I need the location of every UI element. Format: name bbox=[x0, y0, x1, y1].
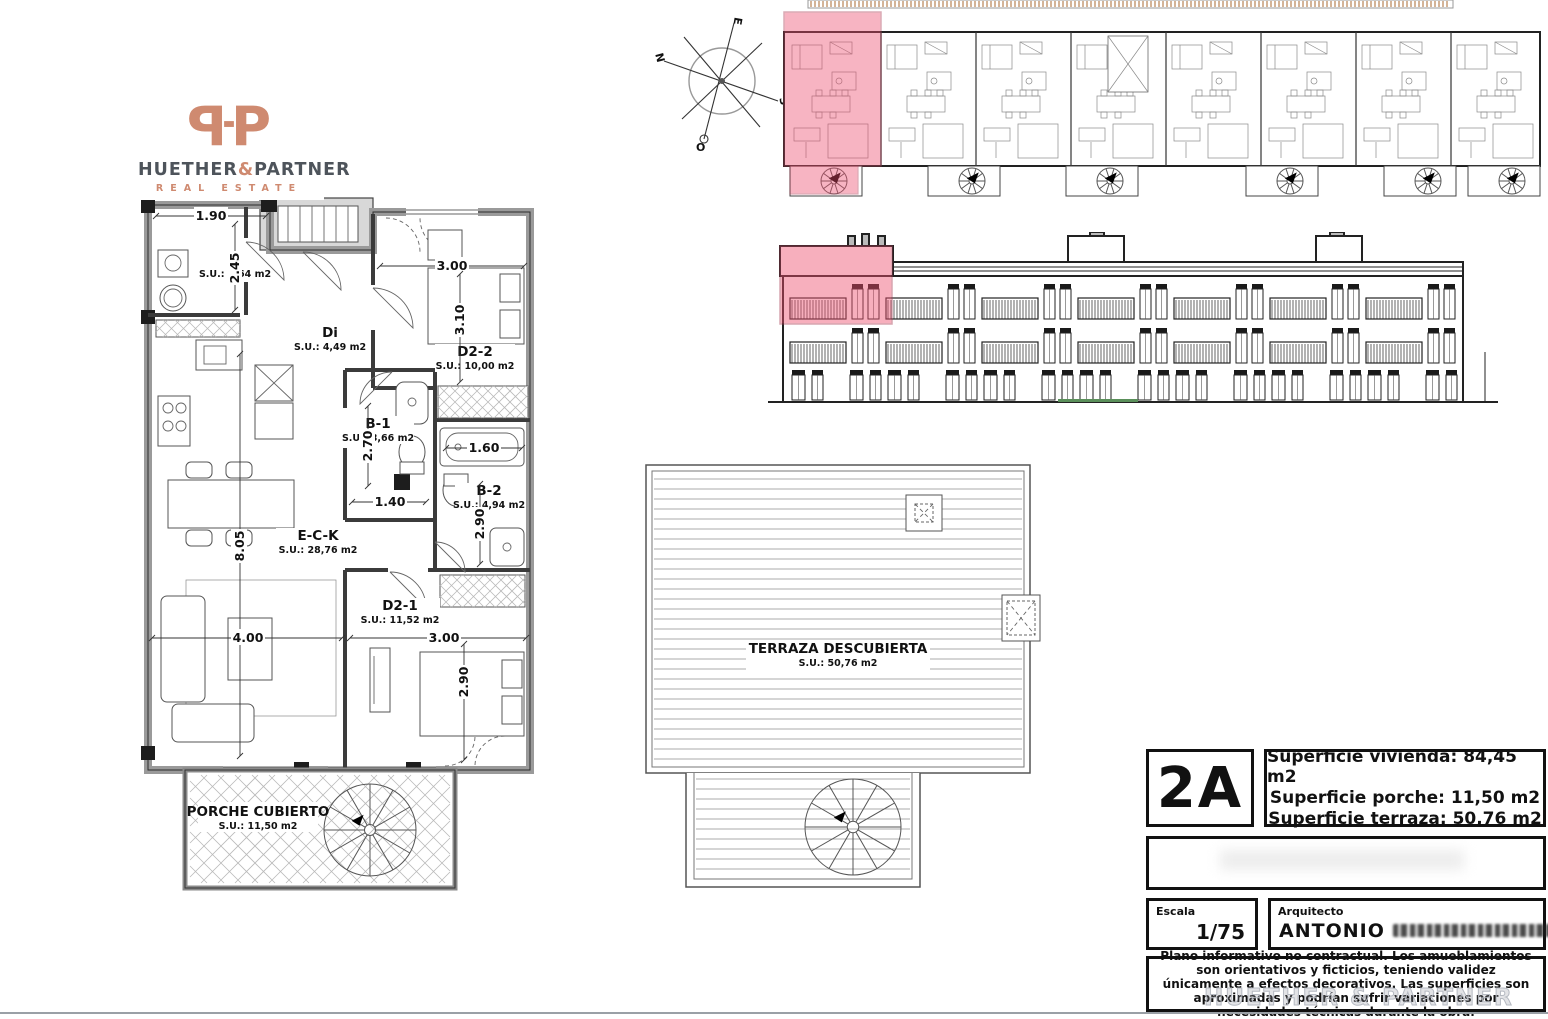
logo: P HUETHER&PARTNER REAL ESTATE bbox=[134, 92, 324, 200]
architect-label: Arquitecto bbox=[1278, 905, 1343, 918]
svg-text:2.90: 2.90 bbox=[472, 508, 487, 539]
unit-number-box: 2A bbox=[1146, 749, 1254, 827]
compass-rose-icon: N S E O bbox=[652, 15, 797, 155]
grass bbox=[1058, 399, 1138, 402]
faded-content bbox=[1220, 850, 1464, 870]
svg-text:E-C-K: E-C-K bbox=[297, 528, 339, 544]
svg-text:3.00: 3.00 bbox=[437, 258, 468, 273]
key-plan-porches bbox=[790, 166, 1540, 196]
redacted-name bbox=[1393, 924, 1548, 937]
stair-core bbox=[1108, 36, 1148, 92]
svg-text:S.U.: 11,52 m2: S.U.: 11,52 m2 bbox=[361, 615, 440, 626]
svg-text:S.U.: 10,00 m2: S.U.: 10,00 m2 bbox=[436, 361, 515, 372]
building-outline bbox=[784, 32, 1540, 166]
empty-title-box bbox=[1146, 836, 1546, 890]
logo-monogram-icon: P bbox=[186, 94, 272, 156]
surface-vivienda: Superficie vivienda: 84,45 m2 bbox=[1267, 747, 1543, 788]
svg-text:S.U.: 4,94 m2: S.U.: 4,94 m2 bbox=[453, 500, 525, 511]
pergola-hatch-strip bbox=[808, 0, 1453, 8]
architect-name: ANTONIO bbox=[1279, 920, 1548, 942]
svg-text:1.40: 1.40 bbox=[375, 494, 406, 509]
highlighted-unit bbox=[784, 12, 881, 194]
apartment-floor-plan: LS.U.: 5,64 m2 DiS.U.: 4,49 m2 D2-2S.U.:… bbox=[128, 190, 548, 935]
svg-text:P: P bbox=[231, 95, 271, 156]
terrace-label: TERRAZA DESCUBIERTA S.U.: 50,76 m2 bbox=[746, 641, 930, 671]
surface-terraza: Superficie terraza: 50,76 m2 bbox=[1268, 809, 1542, 830]
svg-text:1.60: 1.60 bbox=[469, 440, 500, 455]
svg-text:2.70: 2.70 bbox=[360, 430, 375, 461]
surface-porche: Superficie porche: 11,50 m2 bbox=[1270, 788, 1540, 809]
svg-text:2.45: 2.45 bbox=[227, 253, 242, 284]
svg-text:Di: Di bbox=[322, 325, 338, 341]
surface-areas-box: Superficie vivienda: 84,45 m2 Superficie… bbox=[1264, 749, 1546, 827]
svg-text:D2-1: D2-1 bbox=[382, 598, 418, 614]
building-key-plan bbox=[778, 0, 1548, 200]
svg-text:4.00: 4.00 bbox=[233, 630, 264, 645]
highlighted-elevation-unit bbox=[780, 246, 892, 324]
scale-box: Escala 1/75 bbox=[1146, 898, 1258, 950]
building-elevation bbox=[768, 232, 1498, 414]
svg-text:1.90: 1.90 bbox=[196, 208, 227, 223]
floorplan-sheet: LS.U.: 5,64 m2 DiS.U.: 4,49 m2 D2-2S.U.:… bbox=[0, 0, 1548, 1019]
scale-value: 1/75 bbox=[1196, 920, 1245, 944]
svg-text:S.U.: 50,76 m2: S.U.: 50,76 m2 bbox=[799, 658, 878, 669]
svg-text:N: N bbox=[652, 52, 667, 64]
svg-text:2.90: 2.90 bbox=[456, 666, 471, 697]
svg-text:E: E bbox=[730, 16, 744, 26]
svg-text:S.U.: 11,50 m2: S.U.: 11,50 m2 bbox=[219, 821, 298, 832]
svg-text:PORCHE CUBIERTO: PORCHE CUBIERTO bbox=[187, 804, 330, 820]
logo-name: HUETHER&PARTNER bbox=[138, 160, 320, 180]
scale-label: Escala bbox=[1156, 905, 1195, 918]
svg-text:S.U.: 4,49 m2: S.U.: 4,49 m2 bbox=[294, 342, 366, 353]
architect-box: Arquitecto ANTONIO bbox=[1268, 898, 1546, 950]
svg-text:3.10: 3.10 bbox=[452, 304, 467, 335]
watermark: HUETHER & PARTNER bbox=[1204, 985, 1514, 1011]
svg-text:D2-2: D2-2 bbox=[457, 344, 493, 360]
svg-text:8.05: 8.05 bbox=[232, 531, 247, 562]
svg-text:S.U.: 28,76 m2: S.U.: 28,76 m2 bbox=[279, 545, 358, 556]
svg-text:3.00: 3.00 bbox=[429, 630, 460, 645]
logo-tagline: REAL ESTATE bbox=[138, 183, 320, 194]
svg-text:O: O bbox=[696, 141, 705, 154]
terrace-plan: TERRAZA DESCUBIERTA S.U.: 50,76 m2 bbox=[638, 455, 1042, 905]
svg-text:S.U.: 3,66 m2: S.U.: 3,66 m2 bbox=[342, 433, 414, 444]
page-bottom-rule bbox=[0, 1012, 1548, 1014]
terrace-lower-section bbox=[686, 773, 920, 887]
svg-text:TERRAZA DESCUBIERTA: TERRAZA DESCUBIERTA bbox=[749, 641, 928, 657]
